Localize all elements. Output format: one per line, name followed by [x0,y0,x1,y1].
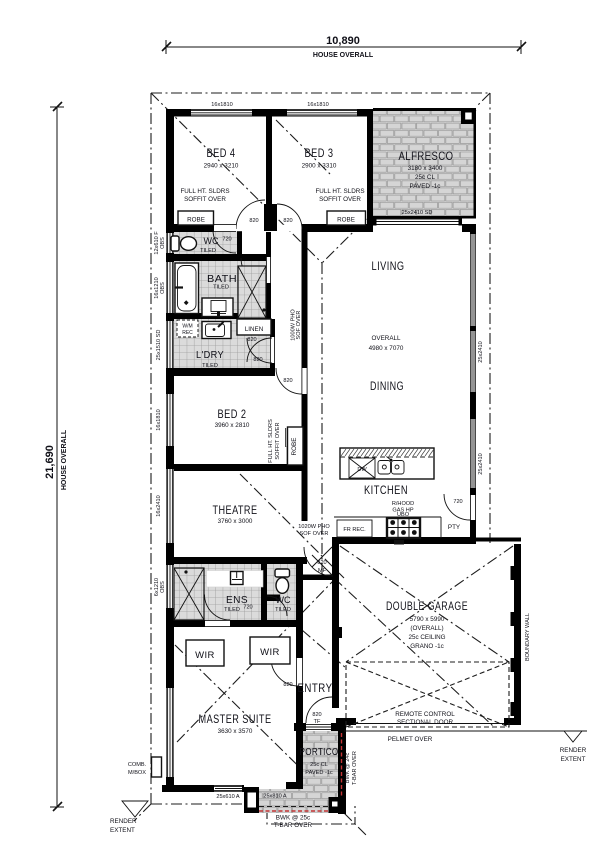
svg-text:TILED: TILED [275,607,291,613]
svg-text:T-BAR OVER: T-BAR OVER [352,751,358,785]
svg-text:REC: REC [182,330,193,336]
svg-text:25x2410: 25x2410 [478,453,484,474]
svg-text:3630 x 3570: 3630 x 3570 [218,728,253,735]
svg-text:MF: MF [318,568,327,574]
svg-text:25x2410: 25x2410 [478,341,484,362]
svg-text:(OVERALL): (OVERALL) [410,625,443,632]
svg-text:R/HOOD: R/HOOD [392,501,414,507]
svg-text:FULL HT. SLDRS: FULL HT. SLDRS [268,419,274,463]
svg-text:ALFRESCO: ALFRESCO [399,149,454,163]
svg-text:ROBE: ROBE [291,438,298,456]
svg-text:PORTICO: PORTICO [300,746,339,758]
svg-text:3180 x 3400: 3180 x 3400 [408,165,443,172]
svg-text:820: 820 [249,218,258,224]
svg-text:16x2410: 16x2410 [156,495,162,516]
svg-text:720: 720 [222,237,231,243]
svg-text:25x1510 SD: 25x1510 SD [156,330,162,361]
svg-text:TILED: TILED [200,248,216,254]
svg-text:SOF OVER: SOF OVER [296,311,302,340]
svg-text:5790 x 5990: 5790 x 5990 [410,616,445,623]
svg-text:M/BOX: M/BOX [128,770,146,776]
svg-text:FULL HT. SLDRS: FULL HT. SLDRS [315,188,364,195]
svg-text:OBS: OBS [160,237,166,249]
svg-text:ROBE: ROBE [187,217,205,224]
svg-text:PAVED -1c: PAVED -1c [305,770,333,776]
svg-text:FULL HT. SLDRS: FULL HT. SLDRS [180,188,229,195]
svg-text:25x810 A: 25x810 A [263,794,287,800]
svg-text:GRANO -1c: GRANO -1c [410,643,444,650]
svg-text:25c CEILING: 25c CEILING [408,634,445,641]
svg-text:820: 820 [283,218,292,224]
svg-text:UBO: UBO [397,512,410,518]
svg-text:OBS: OBS [160,581,166,593]
svg-text:WIR: WIR [260,647,280,658]
svg-text:LINEN: LINEN [245,326,264,333]
svg-text:OVERALL: OVERALL [371,335,401,342]
svg-text:THEATRE: THEATRE [213,503,258,517]
svg-text:720: 720 [453,499,462,505]
svg-text:2940 x 3210: 2940 x 3210 [204,163,239,170]
svg-text:LIVING: LIVING [372,259,405,273]
svg-text:BWK @ 24c: BWK @ 24c [345,753,351,784]
svg-text:2900 x 3310: 2900 x 3310 [302,163,337,170]
svg-text:WIR: WIR [195,650,215,661]
svg-text:TF: TF [314,719,321,725]
svg-text:PAVED -1c: PAVED -1c [410,183,441,190]
svg-text:DINING: DINING [370,379,404,393]
svg-text:25c CL: 25c CL [310,762,328,768]
svg-text:HOUSE OVERALL: HOUSE OVERALL [313,52,374,59]
svg-text:ENTRY: ENTRY [298,681,333,695]
svg-text:L'DRY: L'DRY [196,349,224,361]
svg-text:EXTENT: EXTENT [110,827,135,834]
svg-text:EXTENT: EXTENT [561,756,586,763]
svg-text:HOUSE OVERALL: HOUSE OVERALL [61,429,68,490]
svg-text:SOFFIT OVER: SOFFIT OVER [184,196,226,203]
svg-text:820: 820 [312,712,321,718]
svg-text:25x610 A: 25x610 A [216,794,240,800]
svg-text:TILED: TILED [224,607,240,613]
svg-text:25c CL: 25c CL [415,174,435,181]
svg-text:820: 820 [247,337,256,343]
svg-text:T-BAR OVER: T-BAR OVER [274,822,313,829]
svg-text:RENDER: RENDER [110,818,137,825]
svg-text:PTY: PTY [448,524,461,531]
svg-text:820: 820 [283,378,292,384]
svg-text:16x1810: 16x1810 [211,102,232,108]
svg-text:TILED: TILED [202,363,218,369]
svg-text:820: 820 [317,560,326,566]
svg-text:RENDER: RENDER [560,747,587,754]
svg-text:REMOTE CONTROL: REMOTE CONTROL [395,711,455,718]
svg-text:3760 x 3000: 3760 x 3000 [218,518,253,525]
svg-text:WC: WC [276,595,291,605]
svg-text:16x1810: 16x1810 [156,409,162,430]
svg-text:FR REC.: FR REC. [343,527,366,533]
svg-text:25x2410 SD: 25x2410 SD [402,210,433,216]
svg-text:DW: DW [357,467,367,473]
svg-text:DOUBLE GARAGE: DOUBLE GARAGE [386,599,468,613]
svg-text:3960 x 2810: 3960 x 2810 [215,422,250,429]
svg-text:KITCHEN: KITCHEN [364,483,408,497]
svg-text:WC: WC [204,236,219,246]
svg-text:820: 820 [253,357,262,363]
svg-text:OBS: OBS [160,282,166,294]
svg-text:SECTIONAL DOOR: SECTIONAL DOOR [397,719,454,726]
svg-text:SOF OVER: SOF OVER [300,531,329,537]
svg-text:PELMET OVER: PELMET OVER [388,736,433,743]
svg-text:1020W PHO: 1020W PHO [298,524,330,530]
svg-text:W/M: W/M [182,324,192,330]
svg-text:ROBE: ROBE [337,217,355,224]
svg-text:BED 4: BED 4 [207,146,236,160]
svg-text:BOUNDARY WALL: BOUNDARY WALL [525,613,531,661]
svg-text:10,890: 10,890 [326,35,360,47]
svg-text:MASTER SUITE: MASTER SUITE [199,712,272,726]
svg-text:BED 2: BED 2 [218,407,247,421]
svg-text:820: 820 [283,682,292,688]
svg-text:SOFFIT OVER: SOFFIT OVER [275,422,281,459]
svg-text:ENS: ENS [226,594,248,606]
svg-text:TILED: TILED [213,285,229,291]
svg-text:BWK @ 25c: BWK @ 25c [276,815,310,822]
svg-text:BED 3: BED 3 [305,146,334,160]
svg-text:21,690: 21,690 [44,445,56,479]
svg-text:4980 x 7070: 4980 x 7070 [369,345,404,352]
svg-text:BATH: BATH [207,273,237,285]
svg-text:SOFFIT OVER: SOFFIT OVER [319,196,361,203]
svg-text:16x1810: 16x1810 [307,102,328,108]
svg-text:COMB.: COMB. [128,762,147,768]
